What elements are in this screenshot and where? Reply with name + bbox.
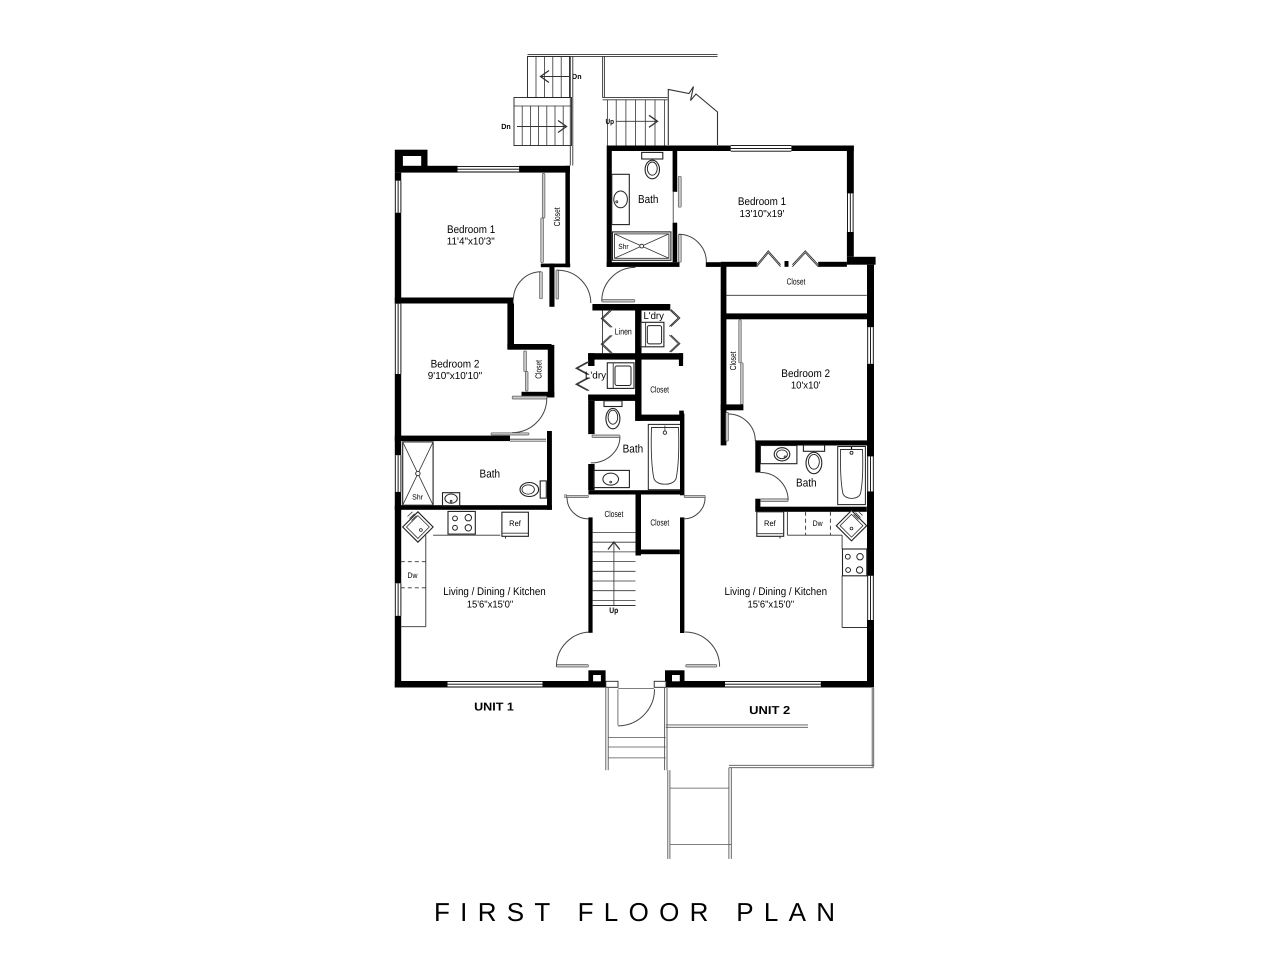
svg-text:Living / Dining / Kitchen: Living / Dining / Kitchen: [725, 586, 828, 598]
svg-text:Ref: Ref: [764, 519, 776, 528]
svg-text:L'dry: L'dry: [643, 311, 664, 322]
svg-text:L'dry: L'dry: [585, 371, 606, 382]
svg-text:Bath: Bath: [638, 194, 659, 206]
svg-text:Closet: Closet: [552, 207, 562, 226]
svg-text:Living / Dining / Kitchen: Living / Dining / Kitchen: [443, 586, 546, 598]
svg-text:9'10"x10'10": 9'10"x10'10": [428, 371, 483, 382]
svg-text:Linen: Linen: [615, 326, 632, 336]
svg-text:13'10"x19': 13'10"x19': [740, 209, 785, 220]
svg-text:Shr: Shr: [618, 242, 629, 251]
svg-text:15'6"x15'0": 15'6"x15'0": [748, 599, 795, 610]
svg-text:Bath: Bath: [796, 478, 817, 490]
svg-text:15'6"x15'0": 15'6"x15'0": [467, 599, 514, 610]
svg-text:Bedroom 1: Bedroom 1: [447, 224, 495, 236]
svg-text:Dw: Dw: [408, 571, 418, 580]
svg-text:11'4"x10'3": 11'4"x10'3": [447, 236, 495, 247]
svg-text:FIRST FLOOR PLAN: FIRST FLOOR PLAN: [434, 897, 835, 927]
svg-text:Dw: Dw: [813, 519, 823, 528]
svg-text:Bedroom 2: Bedroom 2: [431, 359, 480, 371]
svg-text:Closet: Closet: [728, 351, 738, 370]
svg-text:Shr: Shr: [412, 492, 423, 501]
svg-text:Closet: Closet: [534, 360, 544, 379]
svg-text:Bedroom 2: Bedroom 2: [781, 368, 830, 380]
svg-text:Dn: Dn: [501, 122, 511, 131]
svg-text:Bedroom 1: Bedroom 1: [738, 196, 786, 208]
svg-text:Closet: Closet: [650, 518, 669, 528]
svg-text:Closet: Closet: [605, 509, 624, 519]
svg-text:Bath: Bath: [623, 444, 644, 456]
svg-text:Dn: Dn: [572, 72, 582, 81]
svg-text:Bath: Bath: [480, 469, 501, 481]
svg-text:Closet: Closet: [650, 385, 669, 395]
svg-text:UNIT 1: UNIT 1: [474, 702, 514, 714]
svg-text:Closet: Closet: [787, 276, 806, 286]
svg-text:10'x10': 10'x10': [791, 381, 821, 392]
svg-text:Ref: Ref: [509, 519, 521, 528]
svg-text:UNIT 2: UNIT 2: [749, 705, 790, 717]
svg-text:Up: Up: [609, 606, 618, 615]
svg-text:Up: Up: [606, 117, 615, 126]
